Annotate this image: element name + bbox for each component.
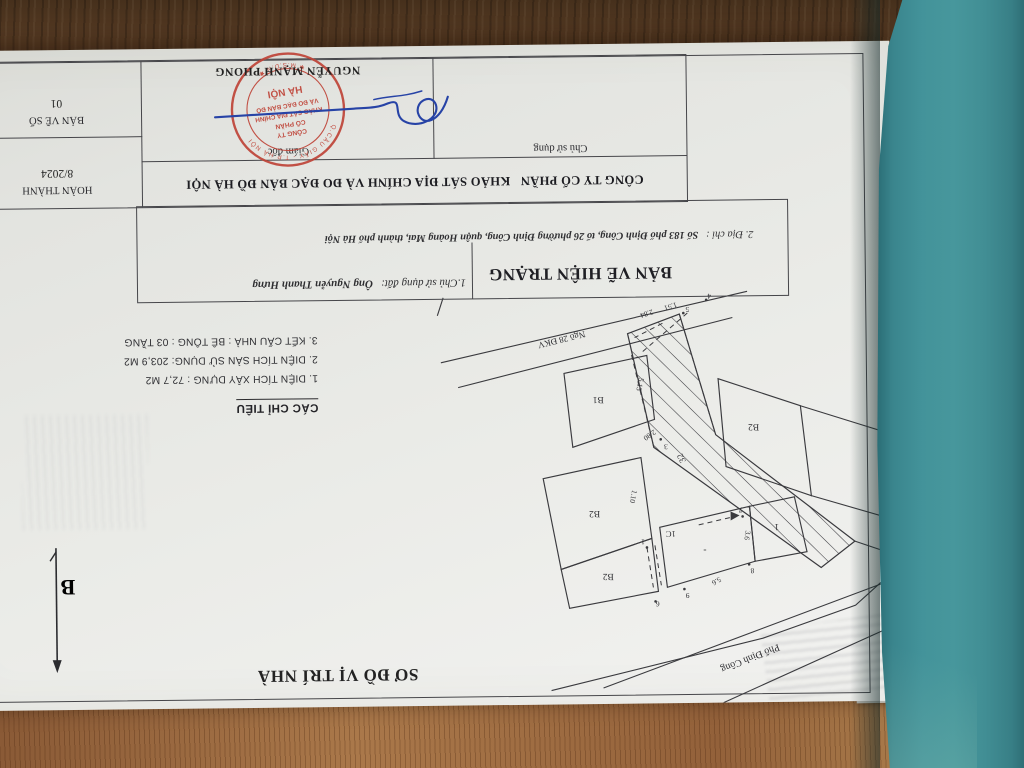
owner-value: Ông Nguyễn Thanh Hưng — [252, 278, 373, 291]
address-line: 2. Địa chỉ : Số 183 phố Định Công, tổ 26… — [153, 228, 753, 246]
indicators-block: CÁC CHỈ TIÊU 1. DIỆN TÍCH XÂY DỰNG : 72,… — [38, 334, 319, 420]
owner-label: 1.Chủ sử dụng đất: — [381, 277, 466, 290]
address-value: Số 183 phố Định Công, tổ 26 phường Định … — [325, 229, 699, 244]
parcel-label: - — [703, 545, 706, 555]
user-signature-cell: Chủ sử dụng — [432, 55, 686, 159]
parcel-label: 1 — [774, 521, 779, 531]
signature-icon — [202, 77, 463, 140]
indicators-title: CÁC CHỈ TIÊU — [236, 398, 318, 414]
completed-cell: HOÀN THÀNH 8/2024 — [0, 136, 143, 209]
dim-label: 5.6 — [710, 575, 723, 588]
company-name: CÔNG TY CỔ PHẦN KHẢO SÁT ĐỊA CHÍNH VÀ ĐO… — [142, 155, 687, 207]
completed-value: 8/2024 — [0, 166, 143, 180]
sheet-number-value: 01 — [0, 96, 142, 110]
point-label: 3 — [664, 442, 668, 451]
cover-shadow — [850, 0, 880, 768]
user-sign-header: Chủ sử dụng — [434, 141, 686, 155]
page-title: SƠ ĐỒ VỊ TRÍ NHÀ — [257, 664, 418, 686]
parcel-label: B2 — [602, 571, 613, 581]
paper-sheet: SƠ ĐỒ VỊ TRÍ NHÀ B Phố Định Công — [0, 41, 897, 712]
address-label: 2. Địa chỉ : — [706, 228, 753, 240]
subject-parcel-hatched — [627, 312, 855, 570]
dim-label: 5.13 — [634, 377, 645, 392]
sheet-meta-column: HOÀN THÀNH 8/2024 BẢN VẼ SỐ 01 — [0, 61, 143, 209]
director-signature-cell: Giám đốc CÔNG TY CỔ PHẦN KHẢO SÁT ĐỊA CH… — [140, 58, 434, 162]
ink-bleed-smudge — [21, 414, 148, 530]
point-label: 1 — [641, 538, 645, 547]
title-block: CÔNG TY CỔ PHẦN KHẢO SÁT ĐỊA CHÍNH VÀ ĐO… — [0, 54, 688, 210]
parcel-label: 1C — [665, 529, 675, 539]
sheet-number-cell: BẢN VẼ SỐ 01 — [0, 61, 142, 139]
north-arrow-icon: B — [39, 542, 80, 674]
indicator-item: 1. DIỆN TÍCH XÂY DỰNG : 72,7 M2 — [38, 372, 318, 386]
dim-label: 3.6 — [742, 530, 752, 541]
indicator-item: 3. KẾT CẤU NHÀ : BÊ TÔNG : 03 TẦNG — [38, 334, 318, 348]
completed-label: HOÀN THÀNH — [0, 183, 143, 196]
dim-label: 1.10 — [628, 489, 639, 504]
site-plan: Phố Định Công Ngõ 28 ĐKV — [429, 275, 897, 706]
parcel-label: B2 — [748, 421, 759, 431]
dim-label: 2.84 — [639, 308, 654, 321]
owner-line: 1.Chủ sử dụng đất: Ông Nguyễn Thanh Hưng — [252, 277, 466, 291]
book-cover-roll — [868, 0, 1024, 768]
parcel-label: B1 — [592, 394, 603, 404]
scene-photo: SƠ ĐỒ VỊ TRÍ NHÀ B Phố Định Công — [0, 0, 1024, 768]
drawing-info-row: BẢN VẼ HIỆN TRẠNG 1.Chủ sử dụng đất: Ông… — [136, 199, 789, 303]
point-label: 5 — [685, 305, 689, 314]
point-label: 7 — [738, 505, 742, 514]
point-label: 8 — [750, 566, 754, 575]
sheet-number-label: BẢN VẼ SỐ — [0, 113, 142, 126]
north-label: B — [60, 575, 75, 600]
drawing-title: BẢN VẼ HIỆN TRẠNG — [473, 262, 688, 284]
alley-label: Ngõ 28 ĐKV — [536, 329, 586, 350]
point-label: 9 — [685, 591, 689, 600]
indicator-item: 2. DIỆN TÍCH SÀN SỬ DỤNG: 203,9 M2 — [38, 353, 318, 367]
parcel-dash — [660, 506, 756, 587]
parcel-label: B2 — [589, 508, 600, 518]
